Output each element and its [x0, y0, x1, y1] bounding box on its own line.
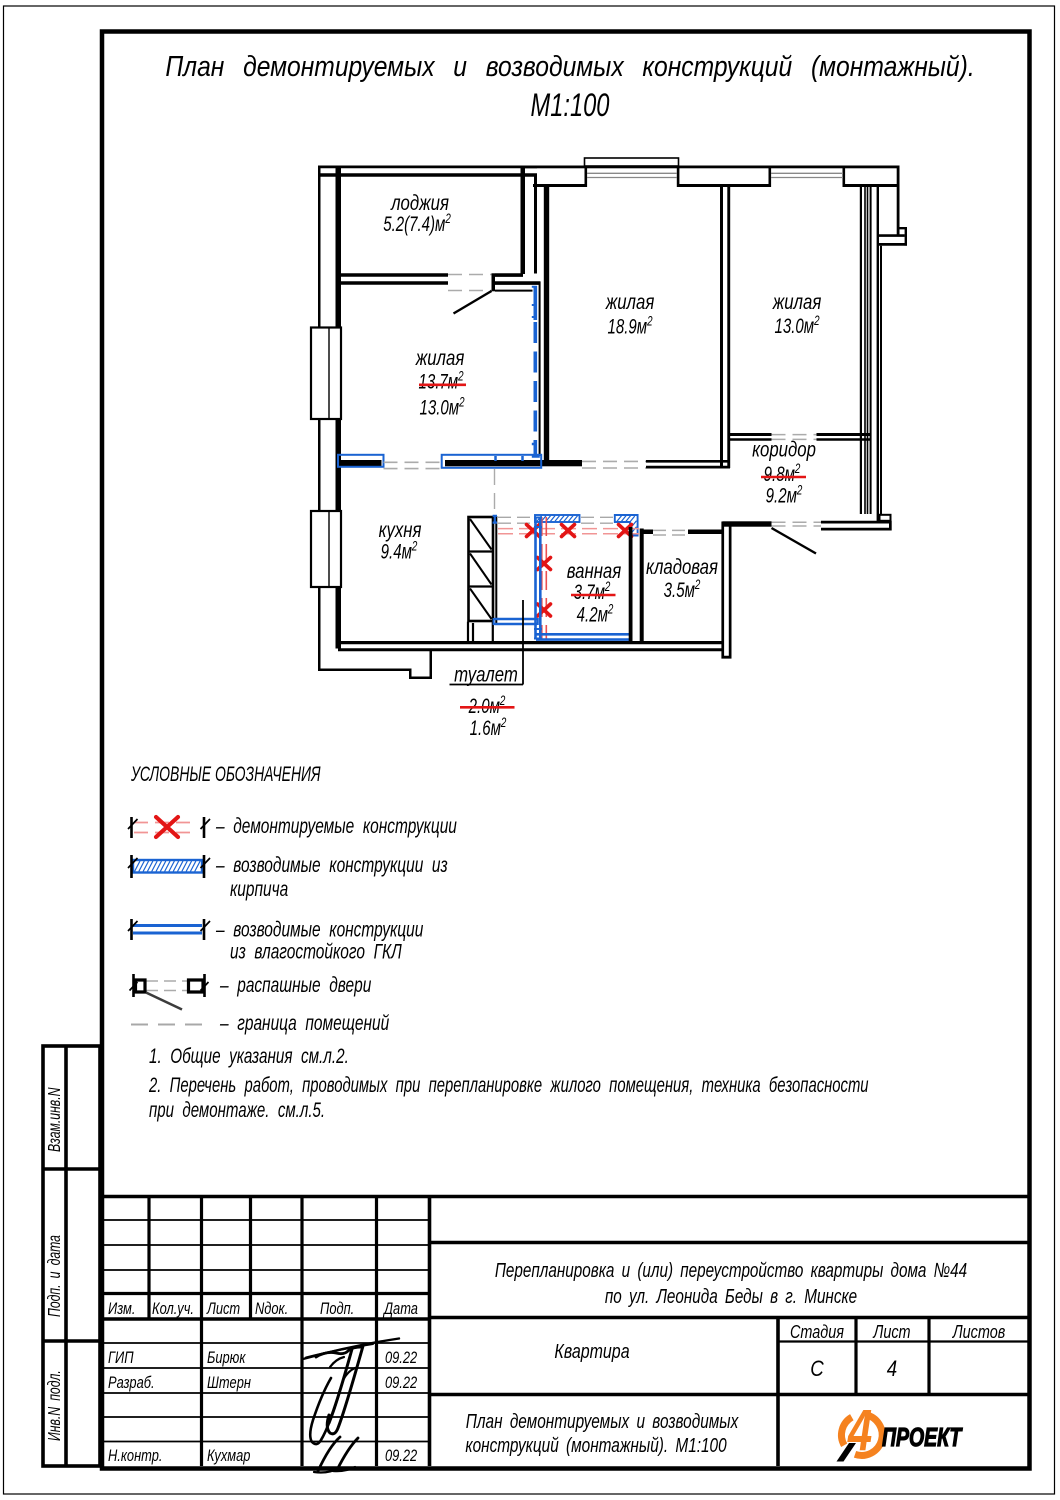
svg-text:2.0м2: 2.0м2: [468, 692, 506, 717]
svg-text:09.22: 09.22: [385, 1375, 417, 1393]
svg-text:– граница помещений: – граница помещений: [219, 1010, 390, 1034]
svg-text:Н.контр.: Н.контр.: [108, 1448, 162, 1466]
svg-text:4.2м2: 4.2м2: [577, 601, 614, 626]
svg-text:Взам.инв.N: Взам.инв.N: [45, 1087, 65, 1152]
svg-text:М1:100: М1:100: [531, 88, 610, 123]
svg-text:Кол.уч.: Кол.уч.: [152, 1301, 194, 1319]
svg-text:Подп. и дата: Подп. и дата: [45, 1235, 65, 1317]
svg-text:Бирюк: Бирюк: [207, 1350, 246, 1368]
svg-text:коридор: коридор: [752, 439, 816, 462]
svg-text:Лист: Лист: [206, 1301, 240, 1319]
svg-text:– распашные двери: – распашные двери: [219, 972, 372, 996]
svg-text:4: 4: [887, 1358, 897, 1382]
svg-text:План демонтируемых и возводимы: План демонтируемых и возводимых: [466, 1410, 739, 1433]
svg-text:С: С: [810, 1358, 824, 1382]
svg-text:жилая: жилая: [772, 291, 821, 314]
svg-text:– возводимые конструкции: – возводимые конструкции: [215, 917, 424, 941]
svg-text:09.22: 09.22: [385, 1350, 417, 1368]
svg-text:2. Перечень работ, проводимых: 2. Перечень работ, проводимых при перепл…: [148, 1072, 868, 1096]
svg-text:жилая: жилая: [415, 347, 464, 370]
svg-text:13.0м2: 13.0м2: [774, 312, 819, 337]
svg-text:при демонтаже. см.л.5.: при демонтаже. см.л.5.: [149, 1097, 325, 1121]
svg-text:Nдок.: Nдок.: [255, 1301, 288, 1319]
svg-text:по ул. Леонида Беды в г. Минск: по ул. Леонида Беды в г. Минске: [605, 1285, 857, 1308]
svg-text:1.6м2: 1.6м2: [470, 714, 507, 739]
svg-text:Разраб.: Разраб.: [108, 1375, 155, 1393]
svg-text:Квартира: Квартира: [554, 1339, 629, 1362]
svg-text:Кухмар: Кухмар: [207, 1448, 250, 1466]
svg-text:План демонтируемых и возводимы: План демонтируемых и возводимых конструк…: [165, 50, 974, 82]
svg-text:Штерн: Штерн: [207, 1375, 251, 1393]
svg-text:кладовая: кладовая: [646, 556, 718, 579]
svg-text:1. Общие указания см.л.2.: 1. Общие указания см.л.2.: [149, 1043, 349, 1067]
svg-text:9.4м2: 9.4м2: [381, 538, 418, 563]
svg-text:из влагостойкого ГКЛ: из влагостойкого ГКЛ: [230, 939, 402, 963]
svg-text:жилая: жилая: [605, 291, 654, 314]
svg-text:Изм.: Изм.: [108, 1301, 135, 1319]
svg-text:Лист: Лист: [873, 1321, 911, 1342]
svg-text:ПРОЕКТ: ПРОЕКТ: [882, 1422, 963, 1451]
svg-text:Инв.N подл.: Инв.N подл.: [45, 1370, 65, 1441]
svg-text:3.5м2: 3.5м2: [664, 576, 701, 601]
svg-text:9.2м2: 9.2м2: [766, 482, 803, 507]
svg-text:13.0м2: 13.0м2: [419, 394, 464, 419]
svg-text:Подп.: Подп.: [320, 1301, 354, 1319]
svg-text:Дата: Дата: [382, 1301, 418, 1319]
svg-text:4: 4: [847, 1398, 872, 1462]
svg-text:18.9м2: 18.9м2: [607, 313, 652, 338]
svg-text:конструкций (монтажный). М1:10: конструкций (монтажный). М1:100: [465, 1434, 726, 1457]
svg-text:туалет: туалет: [454, 664, 518, 687]
svg-text:кирпича: кирпича: [230, 876, 288, 900]
svg-text:– демонтируемые конструкции: – демонтируемые конструкции: [215, 813, 457, 837]
svg-text:Листов: Листов: [952, 1321, 1006, 1342]
svg-text:09.22: 09.22: [385, 1448, 417, 1466]
svg-text:Стадия: Стадия: [790, 1321, 844, 1342]
svg-text:13.7м2: 13.7м2: [418, 368, 463, 393]
svg-text:ГИП: ГИП: [108, 1350, 134, 1368]
svg-text:5.2(7.4)м2: 5.2(7.4)м2: [383, 210, 451, 235]
svg-text:Перепланировка и (или) переуст: Перепланировка и (или) переустройство кв…: [495, 1259, 967, 1282]
svg-text:– возводимые конструкции из: – возводимые конструкции из: [215, 852, 448, 876]
svg-text:3.7м2: 3.7м2: [574, 578, 611, 603]
svg-text:УСЛОВНЫЕ ОБОЗНАЧЕНИЯ: УСЛОВНЫЕ ОБОЗНАЧЕНИЯ: [130, 762, 321, 786]
